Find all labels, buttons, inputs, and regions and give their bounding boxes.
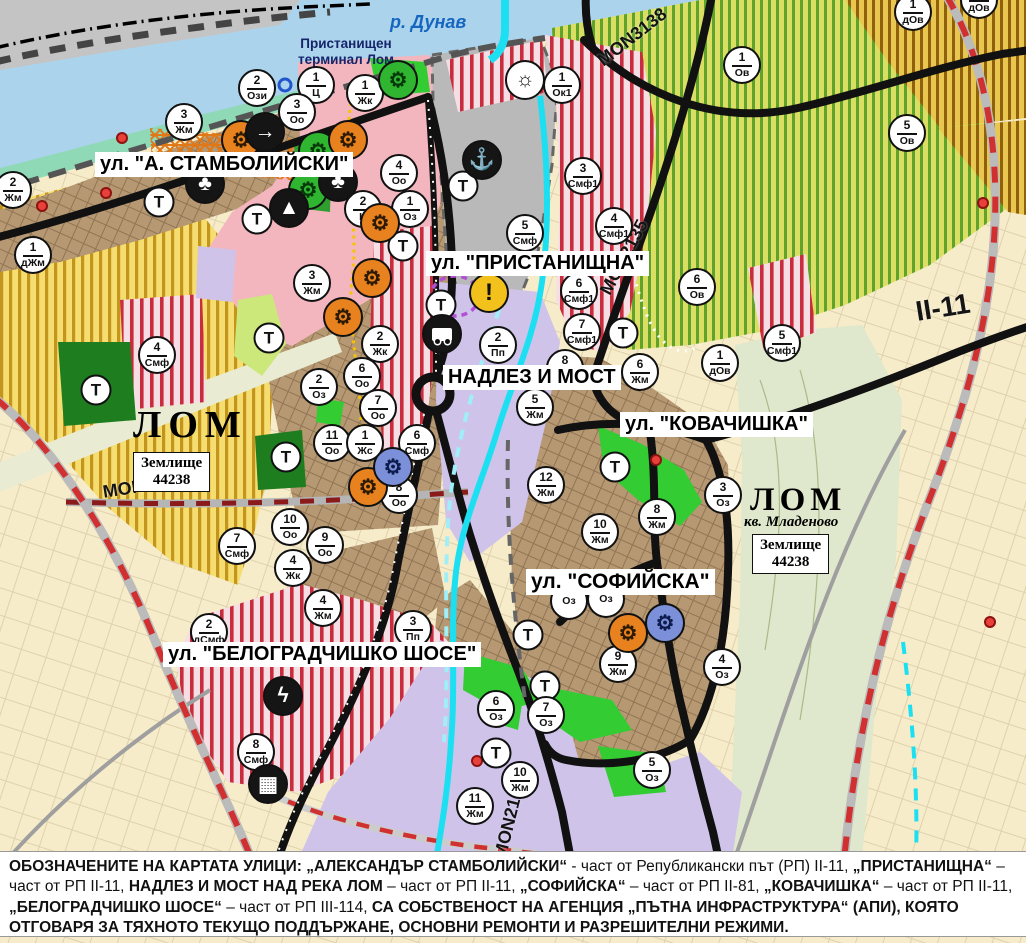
zone-marker: 1дЖм	[14, 236, 52, 274]
river-danube-label: р. Дунав	[390, 12, 466, 33]
street-label: ул. "КОВАЧИШКА"	[620, 412, 813, 437]
transformer-marker: Т	[81, 375, 112, 406]
land-plot-box: Землище44238	[752, 534, 829, 574]
zone-marker: 7Оз	[527, 696, 565, 734]
zone-marker: 1дОв	[701, 344, 739, 382]
zone-marker: 10Оо	[271, 508, 309, 546]
zone-marker: 5Оз	[633, 751, 671, 789]
zone-marker: 3Смф1	[564, 157, 602, 195]
zone-marker: 4Оз	[703, 648, 741, 686]
district-mladenovo-label: кв. Младеново	[744, 514, 838, 531]
zone-marker: 9Оо	[306, 526, 344, 564]
machine-icon: ⚙	[360, 203, 400, 243]
ring-icon	[278, 78, 293, 93]
zone-marker: 4Смф1	[595, 207, 633, 245]
transformer-marker: Т	[481, 738, 512, 769]
map-canvas[interactable]: 2Ози1Ц1Жк1Ок11Ов1дОв1дОв5Ов3Оо3Жм2Жм4Оо1…	[0, 0, 1026, 943]
zone-marker: 4Жк	[274, 549, 312, 587]
zone-marker: 4Жм	[304, 589, 342, 627]
transformer-marker: Т	[608, 318, 639, 349]
station-icon: ▦	[248, 764, 288, 804]
poi-dot	[984, 616, 996, 628]
land-plot-box: Землище44238	[133, 452, 210, 492]
zone-marker: 2Оз	[300, 368, 338, 406]
transformer-marker: Т	[513, 620, 544, 651]
zone-marker: 2Ози	[238, 69, 276, 107]
lightning-icon: ϟ	[263, 676, 303, 716]
transformer-marker: Т	[144, 187, 175, 218]
machine-icon: ⚙	[608, 613, 648, 653]
zone-marker: 1Ов	[723, 46, 761, 84]
transformer-marker: Т	[254, 323, 285, 354]
crane-icon: ☼	[505, 60, 545, 100]
zone-marker: 5Ов	[888, 114, 926, 152]
arrow-icon: →	[245, 112, 285, 152]
zone-marker: 3Жм	[293, 264, 331, 302]
machine-icon: ⚙	[645, 603, 685, 643]
zone-marker: 6Смф1	[560, 272, 598, 310]
machine-icon: ⚙	[323, 297, 363, 337]
zone-marker: 5Смф	[506, 214, 544, 252]
poi-dot	[116, 132, 128, 144]
zone-marker: 12Жм	[527, 466, 565, 504]
mountain-icon: ▲	[269, 188, 309, 228]
zone-marker: 7Смф	[218, 527, 256, 565]
transformer-marker: Т	[600, 452, 631, 483]
poi-dot	[977, 197, 989, 209]
zone-marker: 3Оз	[704, 476, 742, 514]
bus-icon	[422, 314, 462, 354]
street-label: НАДЛЕЗ И МОСТ	[443, 365, 621, 390]
zone-marker: 6Ов	[678, 268, 716, 306]
poi-dot	[36, 200, 48, 212]
machine-icon: ⚙	[373, 447, 413, 487]
street-label: ул. "СОФИЙСКА"	[526, 569, 715, 595]
zone-marker: 10Жм	[581, 513, 619, 551]
zone-marker: 4Оо	[380, 154, 418, 192]
warning-icon: !	[469, 273, 509, 313]
zone-marker: 6Оз	[477, 690, 515, 728]
street-label: ул. "ПРИСТАНИЩНА"	[426, 251, 649, 276]
zone-marker: 3Жм	[165, 103, 203, 141]
poi-dot	[650, 454, 662, 466]
zone-marker: 11Жм	[456, 787, 494, 825]
transformer-marker: Т	[271, 442, 302, 473]
street-label: ул. "А. СТАМБОЛИЙСКИ"	[95, 152, 353, 177]
anchor-icon: ⚓	[462, 140, 502, 180]
poi-dot	[100, 187, 112, 199]
machine-icon: ⚙	[378, 60, 418, 100]
street-label: ул. "БЕЛОГРАДЧИШКО ШОСЕ"	[163, 642, 481, 667]
zone-marker: 6Жм	[621, 353, 659, 391]
zone-marker: 8Жм	[638, 498, 676, 536]
transformer-marker: Т	[242, 204, 273, 235]
zone-marker: 5Смф1	[763, 324, 801, 362]
zone-marker: 4Смф	[138, 336, 176, 374]
zone-marker: 7Оо	[359, 389, 397, 427]
zone-marker: 2Пп	[479, 326, 517, 364]
legend-note-text: ОБОЗНАЧЕНИТЕ НА КАРТАТА УЛИЦИ: „АЛЕКСАНД…	[9, 857, 1017, 939]
city-label: ЛОМ	[133, 403, 248, 447]
machine-icon: ⚙	[352, 258, 392, 298]
legend-note: ОБОЗНАЧЕНИТЕ НА КАРТАТА УЛИЦИ: „АЛЕКСАНД…	[0, 851, 1026, 937]
zone-marker: 10Жм	[501, 761, 539, 799]
zone-marker: 1Ок1	[543, 66, 581, 104]
zone-marker: 5Жм	[516, 388, 554, 426]
zone-marker: 7Смф1	[563, 313, 601, 351]
